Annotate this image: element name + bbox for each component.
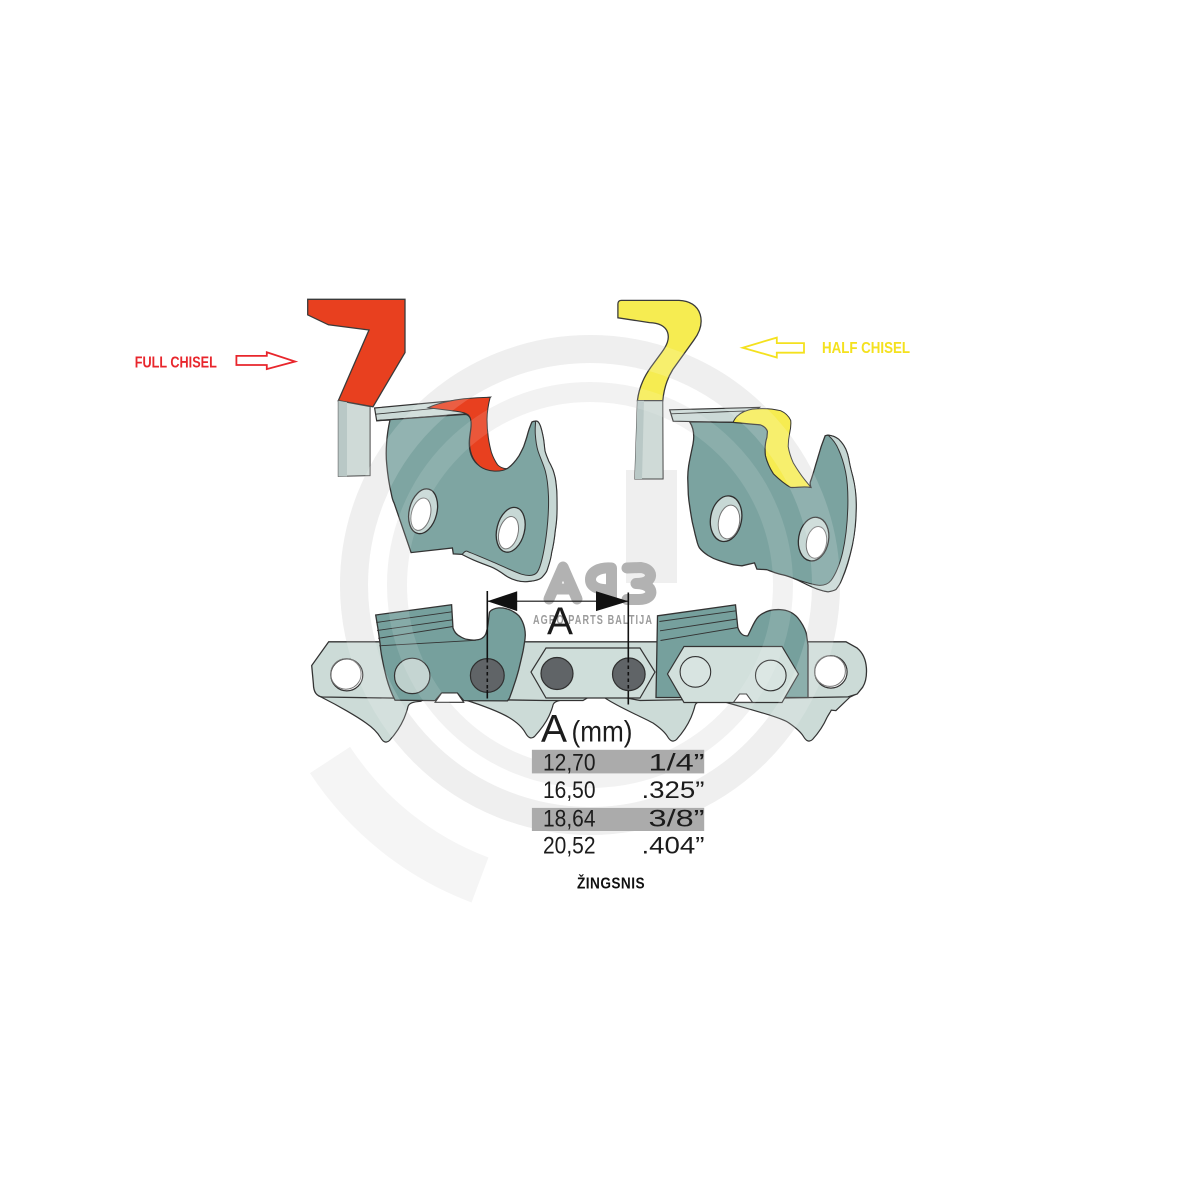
svg-text:1/4”: 1/4”: [649, 749, 705, 776]
svg-text:18,64: 18,64: [543, 805, 596, 832]
svg-text:FULL CHISEL: FULL CHISEL: [135, 354, 217, 371]
svg-text:3/8”: 3/8”: [649, 805, 705, 832]
svg-text:A: A: [541, 708, 567, 751]
svg-text:16,50: 16,50: [543, 777, 596, 804]
svg-text:(mm): (mm): [572, 716, 633, 749]
svg-text:.404”: .404”: [642, 833, 705, 860]
svg-text:HALF CHISEL: HALF CHISEL: [822, 340, 910, 357]
svg-text:.325”: .325”: [642, 777, 705, 804]
svg-text:A: A: [547, 601, 573, 644]
svg-text:ŽINGSNIS: ŽINGSNIS: [577, 875, 645, 893]
svg-text:12,70: 12,70: [543, 749, 596, 776]
svg-text:20,52: 20,52: [543, 833, 596, 860]
